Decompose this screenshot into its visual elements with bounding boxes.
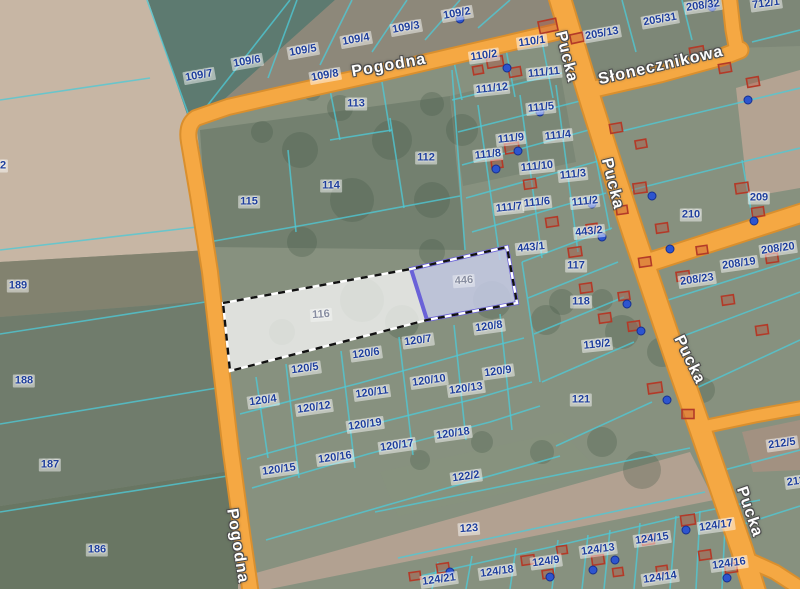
- parcel-label-111-2: 111/2: [569, 194, 601, 210]
- parcel-label-120-5: 120/5: [288, 360, 321, 377]
- parcel-label-213: 213: [784, 474, 800, 490]
- parcel-label-109-2: 109/2: [440, 5, 473, 23]
- parcel-label-124-18: 124/18: [477, 563, 516, 581]
- parcel-label-109-8: 109/8: [308, 67, 341, 85]
- parcel-label-446: 446: [452, 274, 475, 289]
- parcel-label-208-32: 208/32: [683, 0, 722, 15]
- map-label-layer: 109/7109/6109/5109/4109/3109/2109/811311…: [0, 0, 800, 589]
- parcel-label-124-13: 124/13: [578, 541, 617, 559]
- parcel-label-120-18: 120/18: [433, 425, 472, 443]
- parcel-label-205-31: 205/31: [640, 10, 679, 29]
- parcel-label-111-6: 111/6: [521, 195, 553, 211]
- parcel-label-124-16: 124/16: [709, 555, 748, 573]
- parcel-label-120-6: 120/6: [349, 345, 382, 362]
- parcel-label-120-19: 120/19: [345, 416, 384, 434]
- parcel-label-120-10: 120/10: [409, 372, 448, 390]
- street-label-pucka: Pucka: [732, 484, 766, 539]
- parcel-label-111-10: 111/10: [518, 159, 556, 176]
- parcel-label-122-2: 122/2: [449, 468, 482, 485]
- parcel-label-109-4: 109/4: [339, 31, 372, 49]
- street-label-pucka: Pucka: [669, 333, 708, 388]
- parcel-label-111-3: 111/3: [557, 167, 589, 183]
- parcel-label-208-20: 208/20: [758, 240, 797, 258]
- parcel-label-187: 187: [39, 459, 61, 472]
- street-label-pucka: Pucka: [597, 157, 627, 212]
- parcel-label-208-19: 208/19: [719, 255, 758, 273]
- parcel-label-124-21: 124/21: [419, 571, 458, 589]
- street-label-pogodna: Pogodna: [222, 507, 252, 584]
- parcel-label-109-6: 109/6: [230, 53, 263, 71]
- parcel-label-111-9: 111/9: [495, 131, 527, 147]
- parcel-label-2: 2: [0, 160, 8, 173]
- parcel-label-124-15: 124/15: [632, 530, 671, 548]
- parcel-label-712-1: 712/1: [749, 0, 782, 13]
- parcel-label-111-11: 111/11: [526, 65, 563, 82]
- parcel-label-124-9: 124/9: [529, 553, 562, 570]
- parcel-label-186: 186: [86, 544, 108, 557]
- parcel-label-116: 116: [310, 308, 333, 322]
- parcel-label-121: 121: [570, 394, 592, 407]
- parcel-label-209: 209: [748, 192, 770, 205]
- parcel-label-120-17: 120/17: [377, 437, 416, 455]
- parcel-label-188: 188: [13, 375, 35, 388]
- parcel-label-124-17: 124/17: [696, 517, 735, 535]
- parcel-label-111-12: 111/12: [473, 81, 511, 98]
- parcel-label-120-9: 120/9: [481, 363, 514, 380]
- parcel-label-111-5: 111/5: [525, 100, 557, 116]
- parcel-label-443-2: 443/2: [573, 224, 606, 240]
- parcel-label-208-23: 208/23: [677, 271, 716, 289]
- parcel-label-120-7: 120/7: [401, 332, 434, 349]
- parcel-label-123: 123: [457, 522, 480, 537]
- parcel-label-118: 118: [570, 296, 592, 309]
- parcel-label-189: 189: [7, 280, 29, 293]
- parcel-label-115: 115: [238, 196, 260, 209]
- parcel-label-111-7: 111/7: [493, 200, 525, 216]
- parcel-label-120-11: 120/11: [353, 384, 391, 402]
- parcel-label-111-4: 111/4: [542, 128, 574, 144]
- parcel-label-109-7: 109/7: [182, 67, 215, 85]
- parcel-label-120-12: 120/12: [294, 399, 333, 417]
- parcel-label-109-3: 109/3: [389, 19, 422, 37]
- parcel-label-124-14: 124/14: [640, 569, 679, 587]
- parcel-label-117: 117: [565, 260, 587, 273]
- map-canvas[interactable]: 109/7109/6109/5109/4109/3109/2109/811311…: [0, 0, 800, 589]
- parcel-label-110-2: 110/2: [468, 47, 500, 64]
- parcel-label-120-15: 120/15: [259, 461, 298, 479]
- parcel-label-210: 210: [680, 209, 702, 222]
- parcel-label-205-13: 205/13: [582, 24, 621, 43]
- parcel-label-112: 112: [415, 152, 437, 165]
- parcel-label-120-13: 120/13: [446, 380, 485, 398]
- street-label-sonecznikowa: Słonecznikowa: [597, 43, 725, 89]
- parcel-label-212-5: 212/5: [765, 435, 798, 452]
- parcel-label-120-8: 120/8: [472, 318, 505, 335]
- parcel-label-110-1: 110/1: [516, 33, 548, 50]
- parcel-label-109-5: 109/5: [286, 42, 319, 60]
- parcel-label-443-1: 443/1: [515, 240, 548, 256]
- parcel-label-114: 114: [320, 180, 342, 193]
- parcel-label-113: 113: [345, 98, 367, 111]
- parcel-label-120-4: 120/4: [246, 392, 279, 409]
- parcel-label-120-16: 120/16: [315, 449, 354, 467]
- parcel-label-119-2: 119/2: [581, 337, 613, 353]
- parcel-label-111-8: 111/8: [472, 147, 504, 163]
- street-label-pogodna: Pogodna: [350, 51, 427, 82]
